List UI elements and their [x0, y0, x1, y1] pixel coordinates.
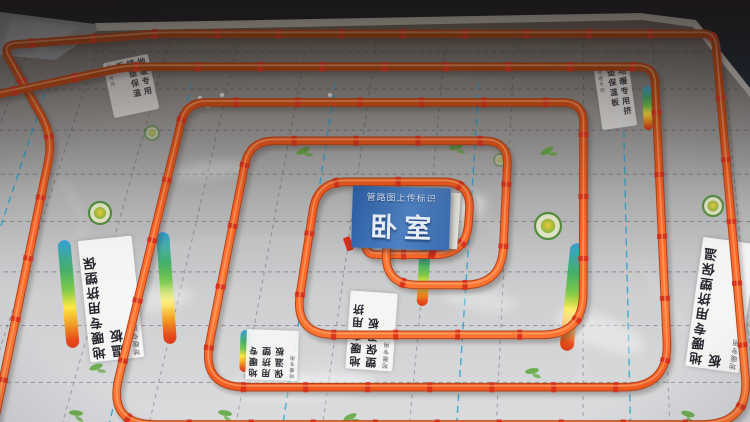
paint-dot: [328, 93, 332, 97]
paint-dot: [206, 104, 210, 108]
photo-underfloor-heating-room: 地暖专用地暖专用挤塑保温板地暖专用地暖专用挤塑保温板地暖专用地暖专用挤塑保温板地…: [0, 0, 750, 422]
sign-room-label: 卧室: [363, 205, 439, 246]
cert-logo-icon: [535, 213, 561, 239]
cert-logo-icon: [145, 126, 159, 140]
paint-dot: [220, 93, 224, 97]
cert-logo-icon: [494, 154, 506, 166]
sign-header-label: 管路图上传标识: [366, 190, 436, 205]
paint-dot: [336, 100, 340, 104]
cert-logo-icon: [703, 196, 723, 216]
room-sign: 管路图上传标识 卧室: [351, 185, 451, 250]
rainbow-bar-print: [239, 330, 250, 372]
paint-dot: [198, 96, 202, 100]
cert-logo-icon: [89, 202, 111, 224]
rainbow-bar-print: [642, 86, 653, 130]
leaf-print-icon: [549, 152, 558, 156]
